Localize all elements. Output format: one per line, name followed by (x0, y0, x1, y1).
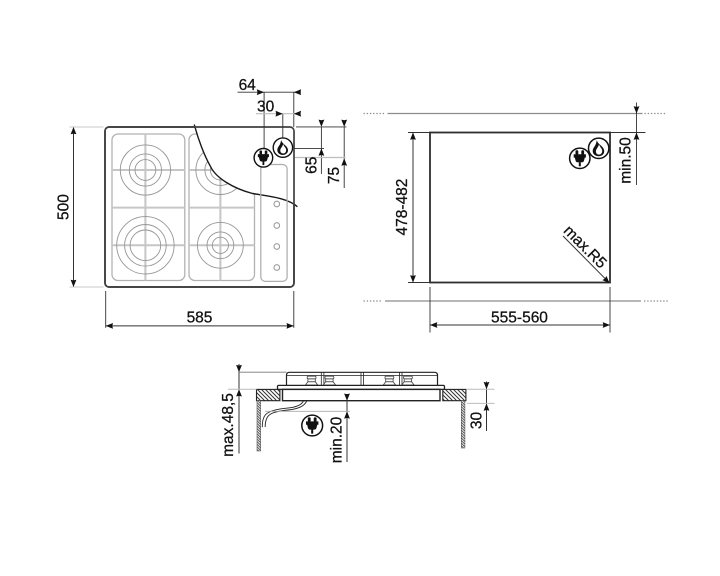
svg-text:30: 30 (469, 412, 486, 430)
svg-text:max.48,5: max.48,5 (220, 393, 237, 457)
svg-text:75: 75 (326, 167, 343, 184)
svg-text:555-560: 555-560 (491, 309, 548, 326)
svg-text:min.20: min.20 (328, 416, 345, 463)
svg-text:65: 65 (303, 157, 320, 174)
svg-text:500: 500 (55, 194, 72, 220)
svg-text:585: 585 (187, 310, 213, 327)
svg-text:478-482: 478-482 (394, 179, 411, 236)
svg-text:64: 64 (239, 77, 257, 94)
svg-text:min.50: min.50 (617, 137, 634, 184)
svg-text:30: 30 (257, 98, 275, 115)
